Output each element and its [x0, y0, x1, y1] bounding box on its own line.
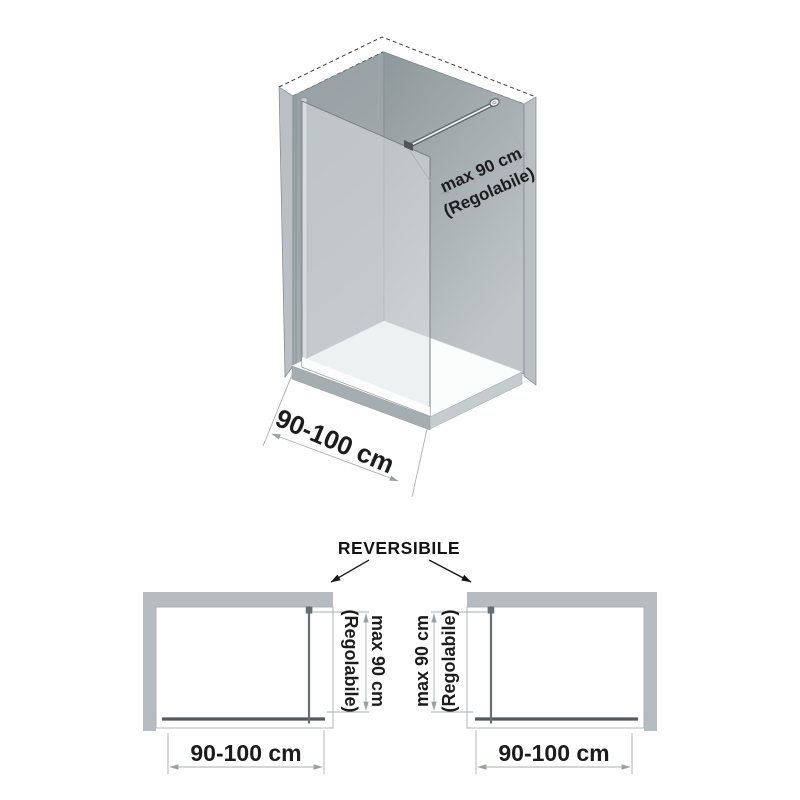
iso-right-wall-edge-strip: [524, 97, 536, 385]
plan-left-side-wall: [143, 592, 156, 731]
shower-enclosure-diagram: max 90 cm (Regolabile) 90-100 cm REVERSI…: [0, 0, 800, 800]
plan-left-width-dim-label: 90-100 cm: [190, 740, 301, 766]
plan-left-bar-dim-label-line1: max 90 cm: [368, 615, 388, 707]
plan-left-top-wall: [143, 592, 333, 607]
plan-right-top-wall: [467, 592, 657, 607]
plan-left-bar-dim-label-line2: (Regolabile): [341, 609, 361, 712]
plan-right-width-dim-label: 90-100 cm: [498, 740, 609, 766]
iso-width-dim-ext-right: [412, 420, 429, 497]
reversible-arrow-right: [429, 560, 471, 582]
plan-right-side-wall: [644, 592, 657, 731]
iso-left-wall-edge-strip: [279, 87, 293, 377]
reversible-arrow-left: [331, 560, 369, 582]
reversible-label: REVERSIBILE: [338, 538, 460, 558]
plan-right-bar-wall-mount: [488, 607, 495, 614]
plan-right-bar-dim-label-line1: max 90 cm: [412, 615, 432, 707]
reversible-callout: REVERSIBILE: [331, 538, 471, 582]
plan-left-interior-outline: [156, 607, 333, 728]
plan-right-bar-dim-label-line2: (Regolabile): [439, 609, 459, 712]
diagram-svg: max 90 cm (Regolabile) 90-100 cm REVERSI…: [0, 0, 800, 800]
plan-right-interior-outline: [467, 607, 644, 728]
plan-left-bar-wall-mount: [306, 607, 313, 614]
plan-view-right: max 90 cm (Regolabile) 90-100 cm: [412, 592, 657, 774]
iso-view: max 90 cm (Regolabile) 90-100 cm: [263, 37, 537, 497]
plan-view-left: max 90 cm (Regolabile) 90-100 cm: [143, 592, 388, 774]
